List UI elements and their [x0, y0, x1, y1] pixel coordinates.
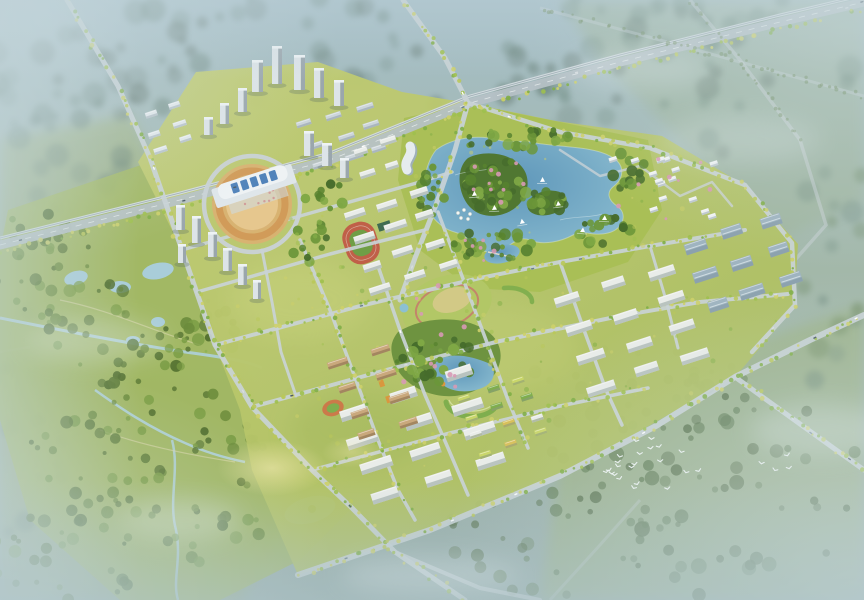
street-tree [451, 253, 455, 257]
street-tree [407, 291, 411, 295]
street-tree [792, 267, 794, 269]
street-tree [527, 90, 530, 93]
wetland-tree [184, 323, 195, 334]
wetland-tree [208, 389, 219, 400]
park-tree [520, 140, 531, 151]
street-tree [418, 440, 421, 443]
street-tree [541, 328, 546, 333]
street-tree [630, 245, 634, 249]
street-tree [356, 378, 360, 382]
park-tree [436, 180, 441, 185]
aerial-rendering-stage [0, 0, 864, 600]
street-tree [484, 276, 489, 281]
street-tree [422, 244, 425, 247]
tower-front-face [340, 160, 346, 178]
park-tree [587, 220, 594, 227]
street-tree [462, 281, 465, 284]
street-tree [440, 435, 444, 439]
site-tree [497, 301, 502, 306]
street-tree [647, 245, 650, 248]
street-tree [325, 313, 328, 316]
site-tree [356, 294, 359, 297]
street-tree [551, 324, 556, 329]
site-tree [360, 289, 365, 294]
street-tree [515, 337, 520, 342]
street-tree [187, 276, 191, 280]
street-tree [325, 384, 329, 388]
site-tree [686, 296, 688, 298]
street-tree [532, 328, 536, 332]
street-tree [314, 388, 318, 392]
blossom-tree [479, 246, 483, 250]
street-tree [259, 401, 263, 405]
park-tree [407, 346, 419, 358]
street-tree [431, 432, 435, 436]
park-tree [586, 236, 596, 246]
site-tree [418, 443, 422, 447]
site-tree [317, 396, 322, 401]
site-tree [469, 151, 473, 155]
street-tree [465, 102, 468, 105]
wake [537, 183, 547, 184]
street-tree [496, 372, 501, 377]
site-tree [424, 266, 428, 270]
park-tree [490, 253, 494, 257]
site-tree [544, 158, 546, 160]
tower-side-face [229, 250, 232, 271]
street-tree [505, 338, 510, 343]
street-tree [318, 386, 320, 388]
dome-tent [468, 212, 471, 215]
street-tree [338, 325, 342, 329]
street-tree [397, 448, 399, 450]
site-tree [354, 369, 357, 372]
blossom-tree [502, 188, 506, 192]
street-tree [334, 329, 338, 333]
tower-front-face [304, 133, 310, 156]
street-tree [447, 115, 451, 119]
park-tree [317, 225, 327, 235]
street-tree [596, 255, 599, 258]
tower-side-face [328, 145, 332, 166]
site-tree [295, 232, 299, 236]
park-tree [299, 245, 306, 252]
street-tree [473, 305, 477, 309]
site-tree [516, 206, 519, 209]
site-tree [481, 313, 486, 318]
site-tree [632, 225, 636, 229]
street-tree [627, 247, 631, 251]
blossom-tree [498, 200, 503, 205]
blossom-tree [436, 283, 441, 288]
site-tree [483, 145, 486, 148]
site-tree [430, 133, 433, 136]
street-tree [535, 263, 539, 267]
blossom-tree [419, 312, 423, 316]
street-tree [550, 263, 553, 266]
tower-front-face [238, 266, 244, 285]
park-tree [558, 192, 565, 199]
tower-side-face [244, 266, 247, 285]
street-tree [312, 280, 316, 284]
street-tree [232, 338, 235, 341]
park-tree [503, 139, 514, 150]
street-tree [415, 291, 418, 294]
site-tree [311, 307, 313, 309]
park-tree [527, 198, 538, 209]
park-tree [468, 141, 474, 147]
mist-top-band [0, 0, 864, 80]
site-tree [467, 282, 470, 285]
park-tree [499, 228, 511, 240]
blossom-tree [521, 182, 525, 186]
street-tree [406, 285, 410, 289]
site-tree [320, 235, 323, 238]
dome-tent [456, 211, 459, 214]
park-tree [439, 193, 449, 203]
blossom-tree [429, 362, 433, 366]
street-tree [459, 121, 462, 124]
street-tree [340, 383, 343, 386]
street-tree [506, 96, 511, 101]
street-tree [412, 132, 416, 136]
street-tree [269, 331, 272, 334]
street-tree [445, 236, 447, 238]
park-tree [512, 228, 524, 240]
street-tree [364, 396, 367, 399]
blossom-tree [489, 168, 493, 172]
park-tree [500, 244, 505, 249]
park-tree [598, 239, 607, 248]
blossom-tree [462, 324, 467, 329]
street-tree [448, 432, 452, 436]
cloud-wisp [660, 116, 820, 164]
tower-side-face [258, 282, 261, 299]
street-tree [310, 272, 313, 275]
street-tree [473, 275, 477, 279]
site-tree [433, 146, 436, 149]
street-tree [227, 364, 231, 368]
park-tree [327, 206, 333, 212]
street-tree [377, 298, 379, 300]
street-tree [471, 423, 475, 427]
park-tree [464, 342, 474, 352]
park-tree [304, 254, 311, 261]
site-tree [541, 344, 545, 348]
park-tree [551, 136, 561, 146]
site-tree [488, 357, 490, 359]
street-tree [201, 310, 205, 314]
blossom-tree [471, 244, 475, 248]
park-tree [337, 198, 348, 209]
street-tree [458, 260, 462, 264]
park-tree [451, 240, 458, 247]
blossom-tree [481, 239, 485, 243]
street-tree [505, 269, 509, 273]
park-tree [418, 339, 425, 346]
street-tree [349, 304, 353, 308]
park-tree [507, 133, 512, 138]
park-tree [467, 134, 473, 140]
tower-roof [322, 143, 332, 146]
street-tree [201, 302, 204, 305]
site-tree [239, 378, 241, 380]
street-tree [518, 98, 521, 101]
park-tree [483, 164, 487, 168]
street-tree [248, 394, 251, 397]
street-tree [523, 333, 526, 336]
street-tree [478, 105, 482, 109]
street-tree [256, 414, 261, 419]
street-tree [279, 438, 282, 441]
park-tree [541, 187, 550, 196]
blossom-tree [492, 249, 497, 254]
street-tree [389, 448, 392, 451]
cloud-wisp [25, 318, 165, 362]
blossom-tree [401, 379, 406, 384]
street-tree [508, 392, 512, 396]
park-tree [420, 371, 431, 382]
park-tree [323, 234, 330, 241]
street-tree [238, 381, 241, 384]
park-tree [487, 233, 492, 238]
street-tree [599, 249, 604, 254]
tower-side-face [310, 133, 314, 156]
street-tree [402, 134, 405, 137]
street-tree [285, 321, 289, 325]
masterplan-aerial-rendering [0, 0, 864, 600]
site-tree [488, 362, 493, 367]
street-tree [651, 241, 654, 244]
street-tree [312, 319, 314, 321]
street-tree [290, 321, 293, 324]
street-tree [217, 348, 220, 351]
street-tree [662, 241, 665, 244]
street-tree [441, 176, 443, 178]
street-tree [303, 240, 306, 243]
site-tree [297, 298, 300, 301]
park-tree [582, 221, 588, 227]
site-tree [321, 215, 324, 218]
park-tree [489, 129, 494, 134]
blossom-tree [415, 297, 418, 300]
park-tree [499, 253, 504, 258]
park-tree [527, 127, 534, 134]
street-tree [449, 170, 453, 174]
blossom-tree [488, 182, 491, 185]
site-tree [387, 440, 391, 444]
tower-side-face [183, 246, 186, 263]
tower-side-face [340, 82, 344, 106]
park-tree [498, 180, 502, 184]
street-tree [443, 232, 446, 235]
street-tree [208, 326, 211, 329]
park-tree [431, 186, 437, 192]
park-tree [465, 174, 476, 185]
street-tree [450, 283, 454, 287]
site-tree [465, 309, 469, 313]
park-tree [448, 344, 460, 356]
street-tree [410, 360, 413, 363]
street-tree [389, 473, 392, 476]
blossom-tree [616, 204, 621, 209]
blossom-tree [453, 374, 457, 378]
blossom-tree [447, 372, 452, 377]
site-tree [489, 146, 492, 149]
street-tree [458, 430, 463, 435]
street-tree [423, 441, 427, 445]
park-tree [464, 229, 474, 239]
street-tree [316, 273, 321, 278]
street-tree [498, 109, 501, 112]
park-tree [326, 179, 336, 189]
street-tree [424, 291, 427, 294]
site-tree [236, 304, 240, 308]
park-tree [457, 232, 465, 240]
street-tree [217, 343, 221, 347]
site-tree [438, 348, 443, 353]
street-tree [561, 261, 566, 266]
wetland-tree [165, 344, 174, 353]
street-tree [403, 446, 406, 449]
park-tree [560, 138, 564, 142]
wetland-tree [174, 333, 179, 338]
street-tree [457, 112, 462, 117]
street-tree [212, 338, 217, 343]
street-tree [191, 276, 194, 279]
park-tree [520, 187, 532, 199]
street-tree [466, 423, 471, 428]
site-tree [205, 350, 208, 353]
street-tree [430, 356, 434, 360]
tower-front-face [223, 250, 229, 271]
tower-roof [178, 244, 186, 247]
street-tree [452, 112, 456, 116]
wetland-tree [182, 337, 188, 343]
park-pond [400, 304, 409, 313]
street-tree [471, 296, 475, 300]
site-tree [640, 243, 645, 248]
street-tree [448, 167, 450, 169]
street-tree [458, 269, 461, 272]
street-tree [541, 126, 543, 128]
site-tree [339, 265, 343, 269]
blossom-tree [482, 259, 485, 262]
tower-roof [238, 264, 247, 267]
street-tree [237, 375, 240, 378]
park-tree [320, 197, 328, 205]
blossom-tree [496, 172, 501, 177]
blossom-tree [464, 239, 467, 242]
street-tree [653, 245, 656, 248]
street-tree [343, 345, 346, 348]
tower-front-face [322, 145, 328, 166]
street-tree [391, 297, 394, 300]
street-tree [310, 169, 314, 173]
cloud-wisp [570, 50, 710, 90]
tower-side-face [214, 234, 217, 257]
park-tree [430, 344, 434, 348]
park-tree [424, 174, 430, 180]
street-tree [233, 374, 236, 377]
street-tree [548, 264, 551, 267]
park-tree [432, 173, 437, 178]
street-tree [486, 105, 489, 108]
site-tree [329, 434, 333, 438]
park-tree [419, 197, 425, 203]
street-tree [178, 236, 182, 240]
street-tree [281, 394, 286, 399]
tower-front-face [178, 246, 183, 263]
tower-front-face [334, 82, 340, 106]
street-tree [367, 300, 370, 303]
tower-roof [334, 80, 344, 83]
blossom-tree [439, 332, 444, 337]
street-tree [541, 263, 544, 266]
wetland-tree [172, 386, 177, 391]
street-tree [364, 301, 368, 305]
street-tree [239, 340, 241, 342]
street-tree [333, 316, 338, 321]
park-tree [556, 199, 564, 207]
street-tree [269, 428, 273, 432]
park-tree [434, 377, 444, 387]
street-tree [525, 124, 529, 128]
street-tree [240, 393, 243, 396]
site-tree [423, 465, 425, 467]
pond [151, 317, 165, 327]
street-tree [417, 244, 421, 248]
street-tree [221, 353, 225, 357]
street-tree [260, 330, 263, 333]
street-tree [502, 383, 506, 387]
street-tree [460, 127, 464, 131]
site-tree [483, 198, 485, 200]
street-tree [434, 203, 438, 207]
street-tree [459, 350, 464, 355]
street-tree [423, 126, 427, 130]
street-tree [350, 377, 353, 380]
park-tree [510, 255, 515, 260]
wetland-tree [160, 360, 170, 370]
street-tree [496, 418, 499, 421]
street-tree [300, 391, 305, 396]
street-tree [273, 435, 278, 440]
site-tree [414, 174, 419, 179]
wetland-tree [192, 333, 205, 346]
street-tree [479, 344, 483, 348]
street-tree [277, 324, 282, 329]
site-tree [289, 217, 293, 221]
park-tree [495, 232, 500, 237]
street-tree [365, 403, 368, 406]
wetland-tree [185, 347, 190, 352]
park-tree [317, 220, 323, 226]
park-tree [619, 223, 628, 232]
street-tree [359, 302, 362, 305]
street-tree [251, 399, 254, 402]
street-tree [203, 321, 205, 323]
park-tree [497, 191, 504, 198]
park-tree [437, 357, 443, 363]
street-tree [341, 306, 345, 310]
blossom-tree [453, 385, 457, 389]
blossom-tree [433, 364, 438, 369]
street-tree [337, 309, 340, 312]
wetland-tree [177, 362, 185, 370]
blossom-tree [514, 161, 518, 165]
street-tree [519, 266, 522, 269]
